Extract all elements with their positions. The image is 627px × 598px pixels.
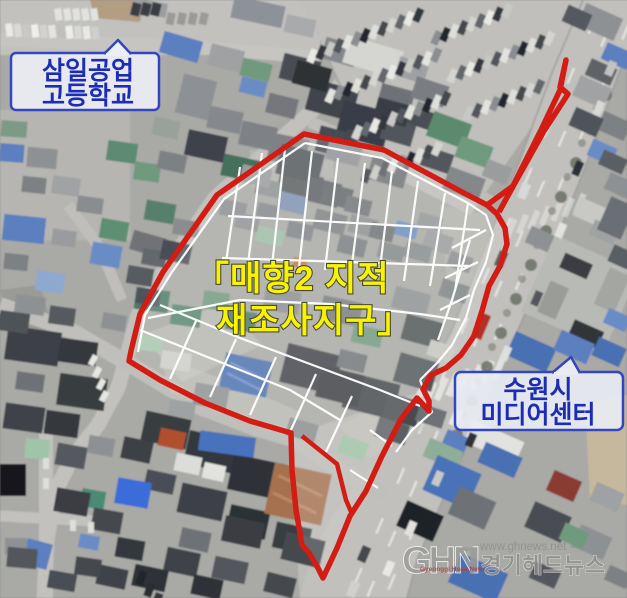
svg-text:「매향2 지적: 「매향2 지적 <box>195 260 389 298</box>
svg-text:미디어센터: 미디어센터 <box>480 401 595 429</box>
svg-text:수원시: 수원시 <box>503 376 572 404</box>
svg-text:삼일공업: 삼일공업 <box>42 57 134 85</box>
svg-text:GHN: GHN <box>402 540 478 582</box>
svg-text:고등학교: 고등학교 <box>42 82 134 110</box>
svg-text:www.ghnews.net ―: www.ghnews.net ― <box>479 541 581 553</box>
svg-text:재조사지구」: 재조사지구」 <box>216 302 412 340</box>
svg-text:Gyeonggi Head News: Gyeonggi Head News <box>420 566 487 573</box>
svg-text:경기헤드뉴스: 경기헤드뉴스 <box>481 553 605 578</box>
